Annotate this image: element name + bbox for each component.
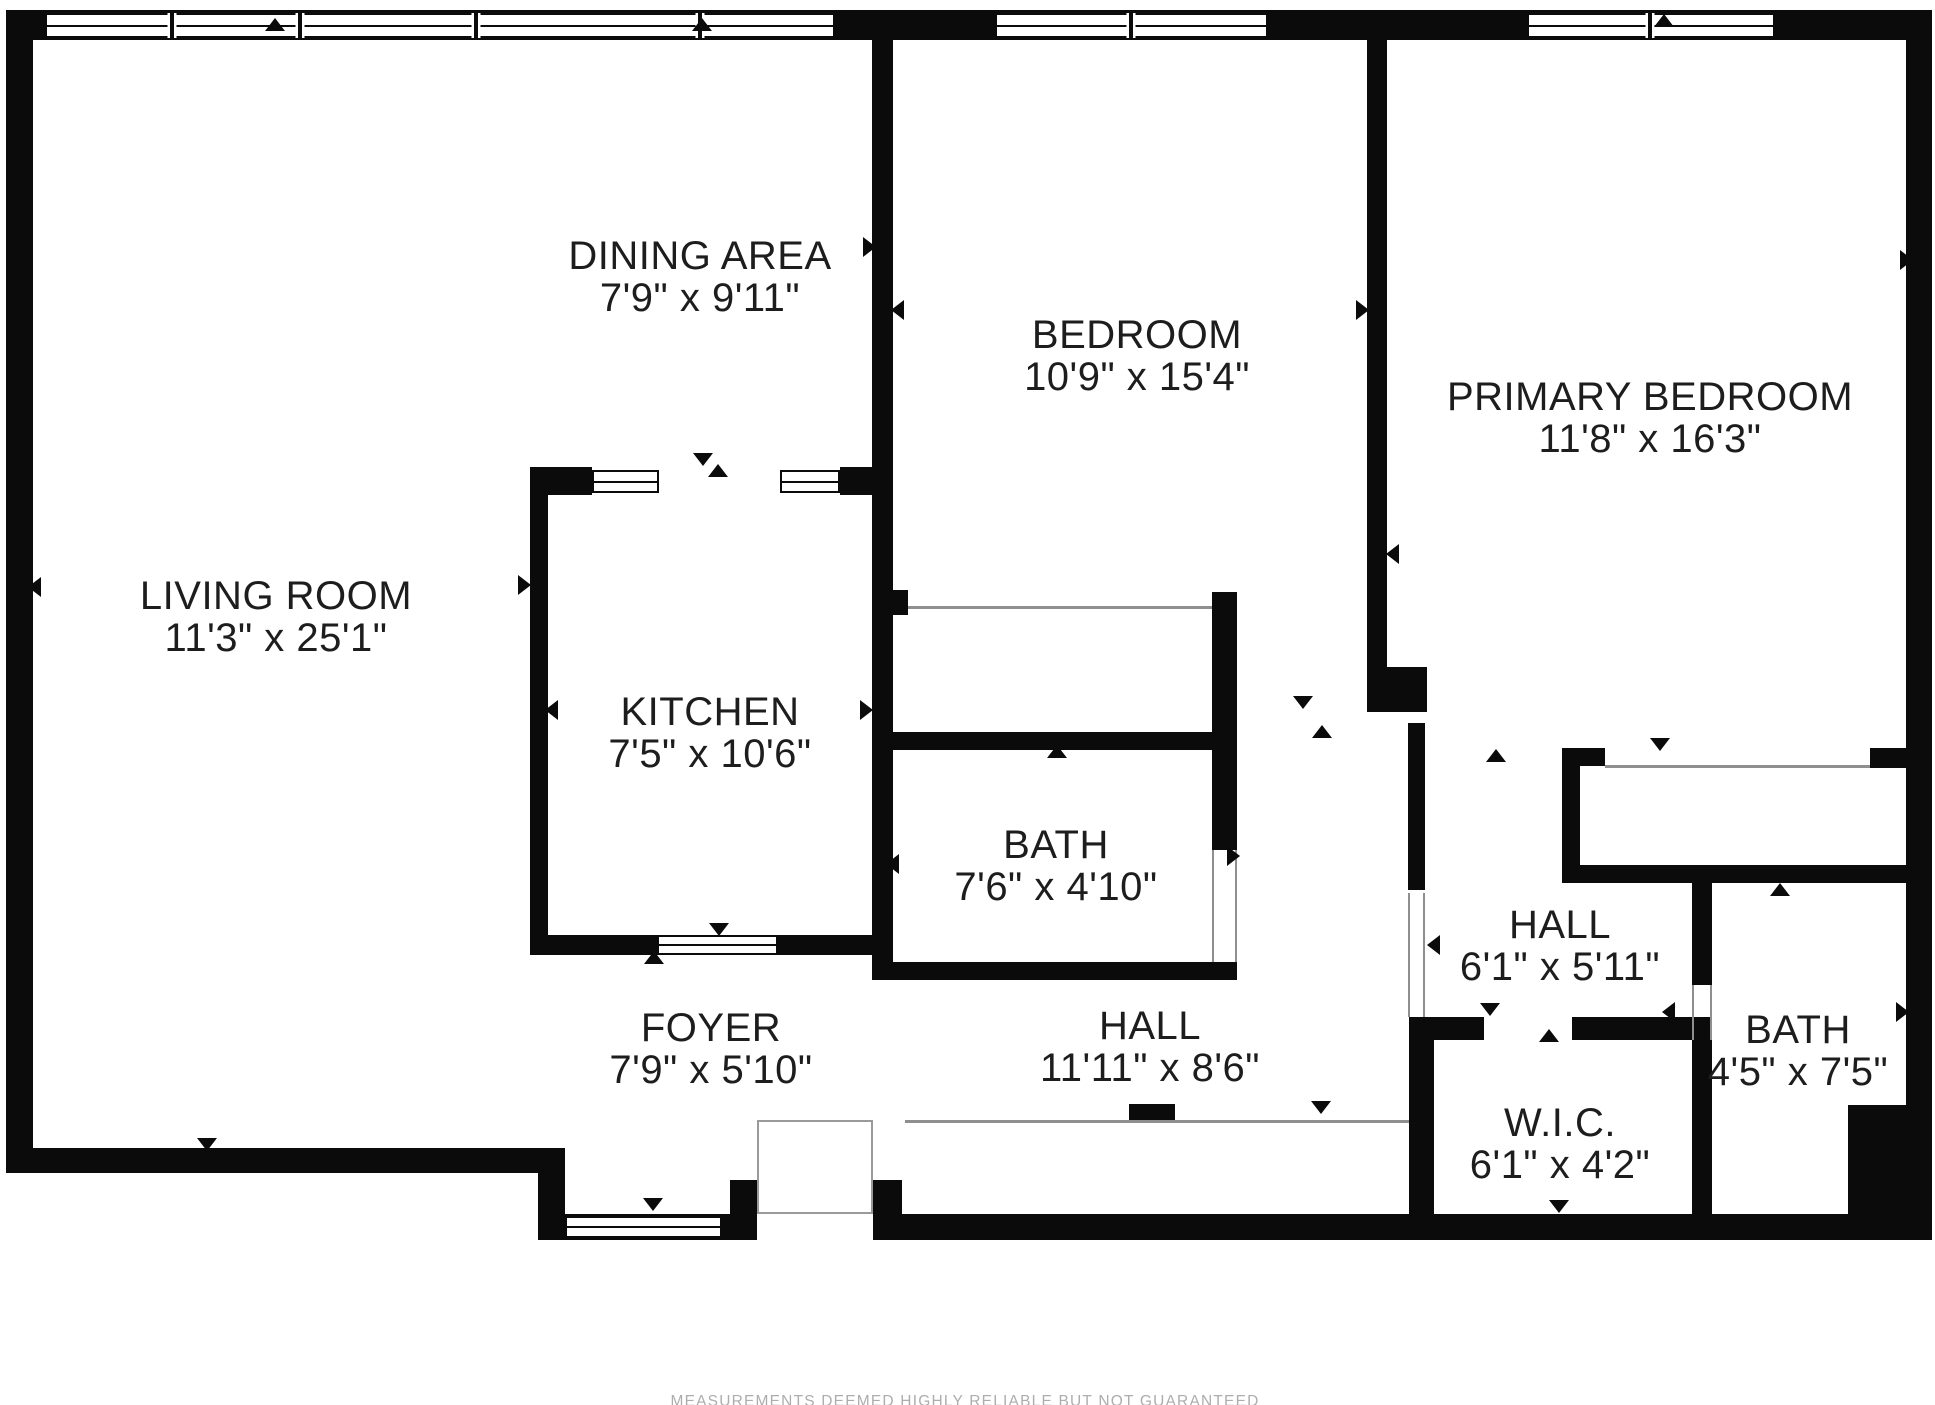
door-marker-icon [1311, 1101, 1331, 1114]
room-dimensions: 6'1" x 4'2" [1470, 1144, 1650, 1186]
room-name: BATH [1003, 823, 1109, 867]
wall-kitchen-bottom-right [778, 935, 893, 955]
door-marker-icon [28, 577, 41, 597]
door-marker-icon [1900, 250, 1913, 270]
window-kitchen-bottom-glass-line [659, 944, 776, 946]
window-top-a-mullion [298, 13, 302, 38]
window-kitchen-top-1-glass-line [594, 481, 657, 483]
wall-bath2-left-upper [1692, 883, 1712, 985]
jamb-bath2-a [1692, 985, 1694, 1040]
closet-line-primary [1605, 765, 1870, 768]
door-marker-icon [1427, 935, 1440, 955]
wall-bath-bottom [877, 962, 1237, 980]
door-marker-icon [1386, 544, 1399, 564]
room-label-bedroom: BEDROOM10'9" x 15'4" [1024, 314, 1250, 398]
room-name: DINING AREA [568, 234, 831, 278]
door-marker-icon [643, 1198, 663, 1211]
door-marker-icon [886, 854, 899, 874]
wall-closet-left [1562, 748, 1580, 883]
room-dimensions: 10'9" x 15'4" [1024, 356, 1250, 398]
room-label-bath: BATH7'6" x 4'10" [954, 824, 1157, 908]
room-dimensions: 6'1" x 5'11" [1460, 946, 1660, 988]
closet-line-bedroom [908, 606, 1212, 609]
door-marker-icon [1356, 300, 1369, 320]
door-marker-icon [863, 237, 876, 257]
wall-right [1906, 10, 1932, 1240]
wall-hall2-west [1408, 723, 1425, 890]
window-top-a-mullion [170, 13, 174, 38]
door-marker-icon [1662, 1002, 1675, 1022]
room-label-hall-2: HALL6'1" x 5'11" [1460, 904, 1660, 988]
room-dimensions: 7'9" x 5'10" [609, 1049, 812, 1091]
door-marker-icon [1896, 1002, 1909, 1022]
wall-closet-right-block [1870, 748, 1906, 768]
room-dimensions: 11'3" x 25'1" [140, 617, 412, 659]
entry-door-opening [757, 1214, 873, 1240]
wall-center-divider [872, 40, 893, 980]
wall-bath2-notch [1848, 1105, 1906, 1240]
window-kitchen-top-2 [780, 470, 840, 493]
jamb-hall2-west-a [1408, 893, 1410, 1017]
room-dimensions: 7'6" x 4'10" [954, 866, 1157, 908]
door-marker-icon [545, 700, 558, 720]
door-marker-icon [265, 18, 285, 31]
wall-bedroom-closet-stub [880, 590, 908, 615]
room-name: KITCHEN [620, 690, 799, 734]
wall-wic-top-right [1572, 1017, 1710, 1040]
room-label-kitchen: KITCHEN7'5" x 10'6" [608, 691, 811, 775]
wall-bath-right [1212, 592, 1237, 850]
closet-line-hall [905, 1120, 1409, 1123]
room-name: W.I.C. [1504, 1101, 1616, 1145]
room-dimensions: 7'9" x 9'11" [568, 277, 831, 319]
room-name: LIVING ROOM [140, 574, 412, 618]
wall-bedroom-divider-block [1367, 667, 1427, 712]
window-kitchen-top-1 [592, 470, 659, 493]
wall-entry-post-left [730, 1180, 757, 1240]
door-marker-icon [1480, 1003, 1500, 1016]
room-dimensions: 11'8" x 16'3" [1447, 418, 1853, 460]
room-label-living-room: LIVING ROOM11'3" x 25'1" [140, 575, 412, 659]
door-marker-icon [518, 575, 531, 595]
door-marker-icon [891, 300, 904, 320]
wall-kitchen-bottom-left [530, 935, 657, 955]
door-marker-icon [1650, 738, 1670, 751]
window-foyer-bottom [565, 1216, 722, 1238]
door-marker-icon [1293, 18, 1313, 31]
wall-closet-top-block [1562, 748, 1605, 766]
door-marker-icon [1539, 1029, 1559, 1042]
window-top-a-glass-line [47, 25, 833, 27]
room-name: BEDROOM [1032, 313, 1242, 357]
door-marker-icon [860, 700, 873, 720]
wall-bedroom-divider [1367, 40, 1387, 667]
window-kitchen-bottom [657, 935, 778, 955]
jamb-bath-right-a [1212, 850, 1214, 962]
door-marker-icon [1047, 745, 1067, 758]
room-name: PRIMARY BEDROOM [1447, 375, 1853, 419]
door-marker-icon [692, 18, 712, 31]
room-label-primary-bedroom: PRIMARY BEDROOM11'8" x 16'3" [1447, 376, 1853, 460]
wall-wic-left [1409, 1017, 1434, 1214]
room-dimensions: 11'11" x 8'6" [1040, 1047, 1260, 1089]
wall-wic-top-left [1409, 1017, 1484, 1040]
room-label-dining-area: DINING AREA7'9" x 9'11" [568, 235, 831, 319]
door-marker-icon [708, 464, 728, 477]
wall-kitchen-top-left-block [530, 467, 592, 495]
room-name: FOYER [641, 1006, 781, 1050]
window-kitchen-top-2-glass-line [782, 481, 838, 483]
door-marker-icon [1654, 14, 1674, 27]
room-label-foyer: FOYER7'9" x 5'10" [609, 1007, 812, 1091]
room-dimensions: 7'5" x 10'6" [608, 733, 811, 775]
room-name: HALL [1099, 1004, 1201, 1048]
door-marker-icon [644, 951, 664, 964]
door-marker-icon [1486, 749, 1506, 762]
room-label-bath-2: BATH4'5" x 7'5" [1708, 1009, 1888, 1093]
door-marker-icon [1293, 696, 1313, 709]
room-dimensions: 4'5" x 7'5" [1708, 1051, 1888, 1093]
entry-threshold-box [757, 1120, 873, 1214]
wall-entry-post-right [873, 1180, 902, 1240]
window-foyer-bottom-glass-line [567, 1226, 720, 1228]
door-marker-icon [709, 923, 729, 936]
room-label-hall: HALL11'11" x 8'6" [1040, 1005, 1260, 1089]
window-top-a-mullion [474, 13, 478, 38]
door-marker-icon [1227, 846, 1240, 866]
jamb-hall2-west-b [1423, 893, 1425, 1017]
window-top-a [45, 13, 835, 38]
door-marker-icon [197, 1138, 217, 1151]
room-name: BATH [1745, 1008, 1851, 1052]
floor-plan: LIVING ROOM11'3" x 25'1"DINING AREA7'9" … [0, 0, 1935, 1405]
wall-closet-bottom [1562, 865, 1906, 883]
door-marker-icon [1312, 725, 1332, 738]
disclaimer-text: MEASUREMENTS DEEMED HIGHLY RELIABLE BUT … [670, 1393, 1259, 1405]
door-marker-icon [1770, 883, 1790, 896]
window-top-c-mullion [1648, 13, 1652, 38]
room-name: HALL [1509, 903, 1611, 947]
door-marker-icon [1549, 1200, 1569, 1213]
wall-living-bottom [6, 1148, 565, 1173]
window-top-b-mullion [1129, 13, 1133, 38]
room-label-wic: W.I.C.6'1" x 4'2" [1470, 1102, 1650, 1186]
jamb-bath-right-b [1235, 850, 1237, 962]
